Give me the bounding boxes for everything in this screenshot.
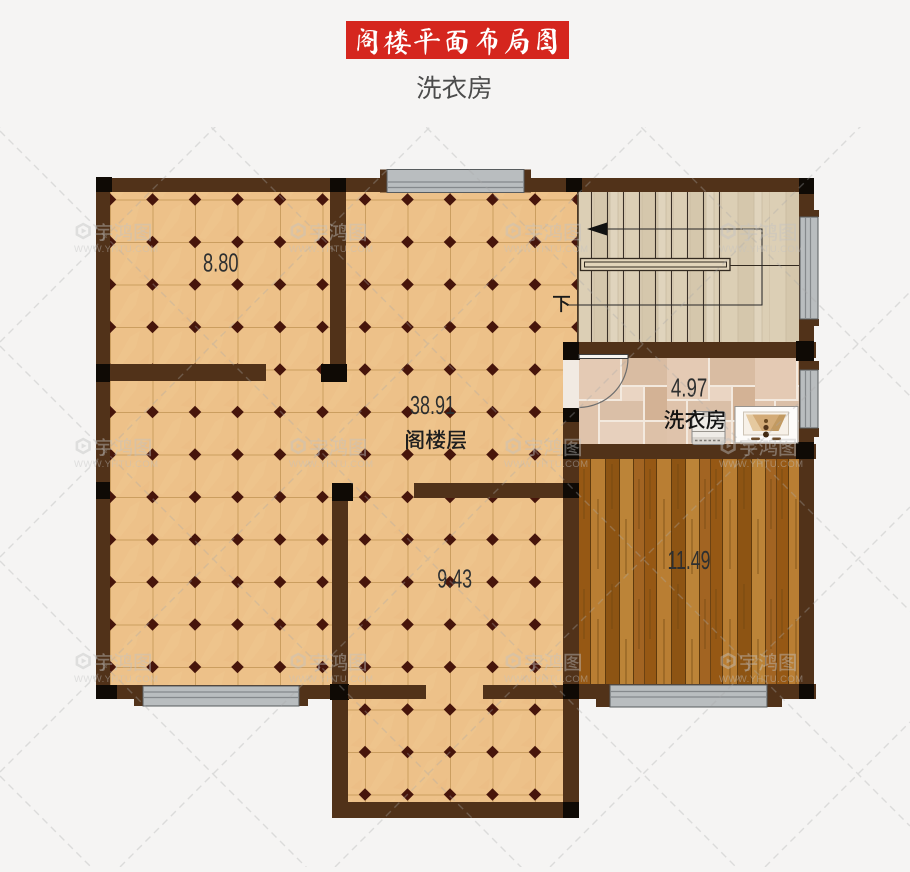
svg-text:38.91: 38.91: [410, 392, 455, 420]
svg-text:WWW.YHTU.COM: WWW.YHTU.COM: [504, 674, 588, 685]
svg-text:WWW.YHTU.COM: WWW.YHTU.COM: [74, 244, 158, 255]
svg-text:WWW.YHTU.COM: WWW.YHTU.COM: [504, 459, 588, 470]
svg-text:WWW.YHTU.COM: WWW.YHTU.COM: [504, 244, 588, 255]
svg-text:WWW.YHTU.COM: WWW.YHTU.COM: [719, 459, 803, 470]
svg-text:WWW.YHTU.COM: WWW.YHTU.COM: [289, 674, 373, 685]
svg-text:WWW.YHTU.COM: WWW.YHTU.COM: [719, 244, 803, 255]
svg-text:WWW.YHTU.COM: WWW.YHTU.COM: [74, 674, 158, 685]
svg-text:11.49: 11.49: [668, 547, 711, 575]
svg-text:WWW.YHTU.COM: WWW.YHTU.COM: [719, 674, 803, 685]
svg-text:9.43: 9.43: [437, 566, 472, 594]
svg-text:WWW.YHTU.COM: WWW.YHTU.COM: [289, 244, 373, 255]
svg-text:4.97: 4.97: [671, 375, 707, 403]
svg-text:WWW.YHTU.COM: WWW.YHTU.COM: [289, 459, 373, 470]
svg-text:8.80: 8.80: [203, 250, 239, 278]
svg-text:WWW.YHTU.COM: WWW.YHTU.COM: [74, 459, 158, 470]
